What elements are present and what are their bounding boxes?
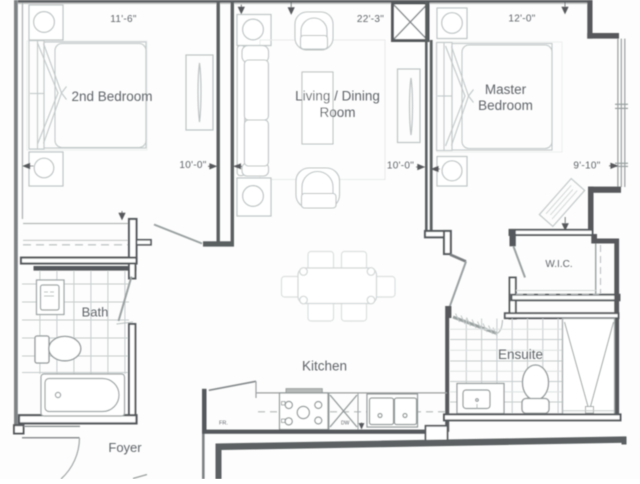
svg-text:Room: Room xyxy=(319,105,355,120)
svg-text:Ensuite: Ensuite xyxy=(498,347,543,362)
svg-text:11'-6": 11'-6" xyxy=(110,14,137,25)
svg-text:10'-0": 10'-0" xyxy=(179,160,206,171)
svg-text:10'-0": 10'-0" xyxy=(387,161,414,172)
svg-text:Living / Dining: Living / Dining xyxy=(295,89,380,104)
svg-text:FR.: FR. xyxy=(219,421,228,427)
svg-text:Foyer: Foyer xyxy=(108,440,142,455)
svg-text:W.I.C.: W.I.C. xyxy=(545,259,572,270)
svg-text:Kitchen: Kitchen xyxy=(302,359,347,374)
svg-text:12'-0": 12'-0" xyxy=(508,14,535,25)
svg-text:Master: Master xyxy=(485,82,527,97)
svg-text:Bedroom: Bedroom xyxy=(478,98,533,113)
svg-text:DW: DW xyxy=(341,421,350,427)
svg-text:22'-3": 22'-3" xyxy=(357,14,384,25)
svg-text:2nd Bedroom: 2nd Bedroom xyxy=(71,89,152,104)
svg-text:9'-10": 9'-10" xyxy=(573,161,600,172)
svg-text:Bath: Bath xyxy=(82,305,109,320)
